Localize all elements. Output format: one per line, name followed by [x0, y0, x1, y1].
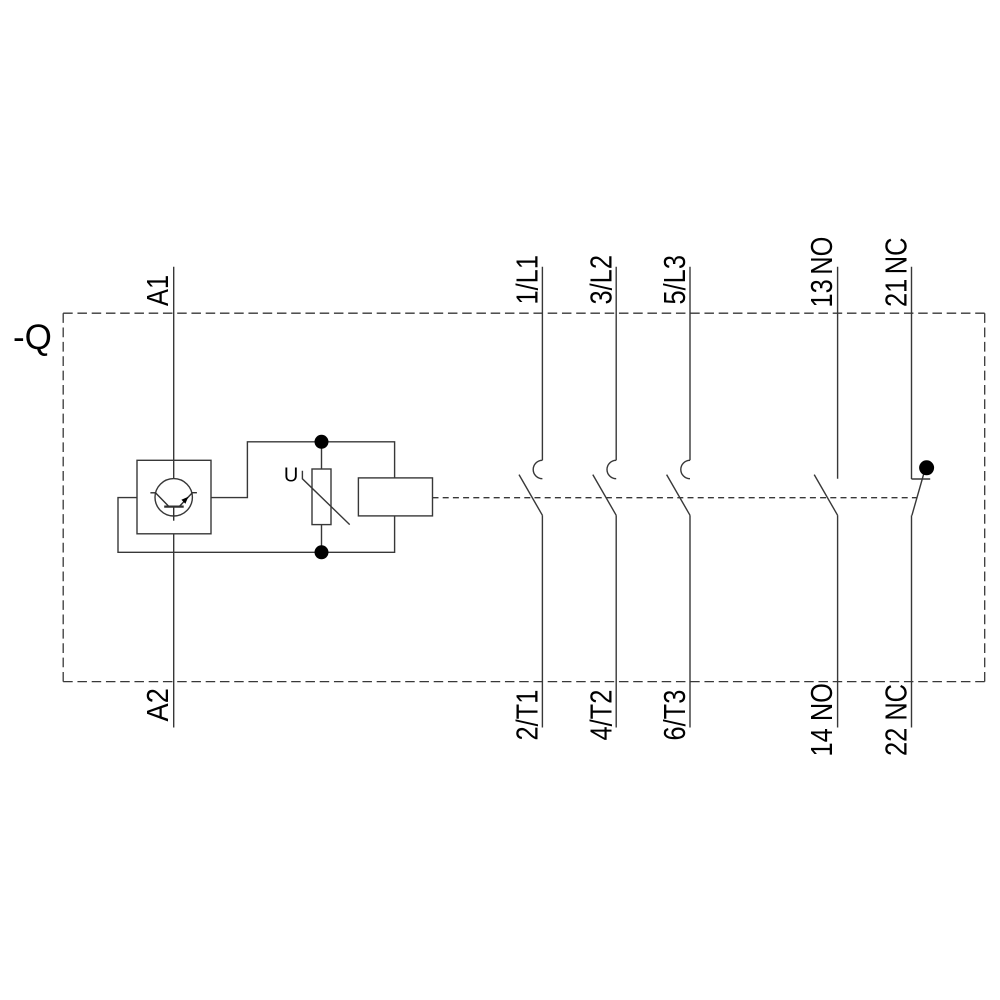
svg-text:21 NC: 21 NC [879, 238, 914, 307]
svg-text:A2: A2 [141, 688, 175, 721]
svg-text:1/L1: 1/L1 [510, 255, 545, 304]
svg-text:A1: A1 [141, 275, 176, 306]
svg-text:4/T2: 4/T2 [584, 690, 619, 741]
svg-text:13 NO: 13 NO [804, 237, 839, 308]
svg-text:14 NO: 14 NO [804, 683, 839, 756]
svg-text:5/L3: 5/L3 [658, 255, 693, 304]
svg-text:6/T3: 6/T3 [658, 690, 693, 741]
svg-text:U: U [284, 464, 298, 486]
svg-text:2/T1: 2/T1 [510, 690, 545, 741]
svg-text:22 NC: 22 NC [879, 684, 914, 756]
svg-text:-Q: -Q [13, 318, 52, 357]
svg-text:3/L2: 3/L2 [584, 255, 619, 304]
